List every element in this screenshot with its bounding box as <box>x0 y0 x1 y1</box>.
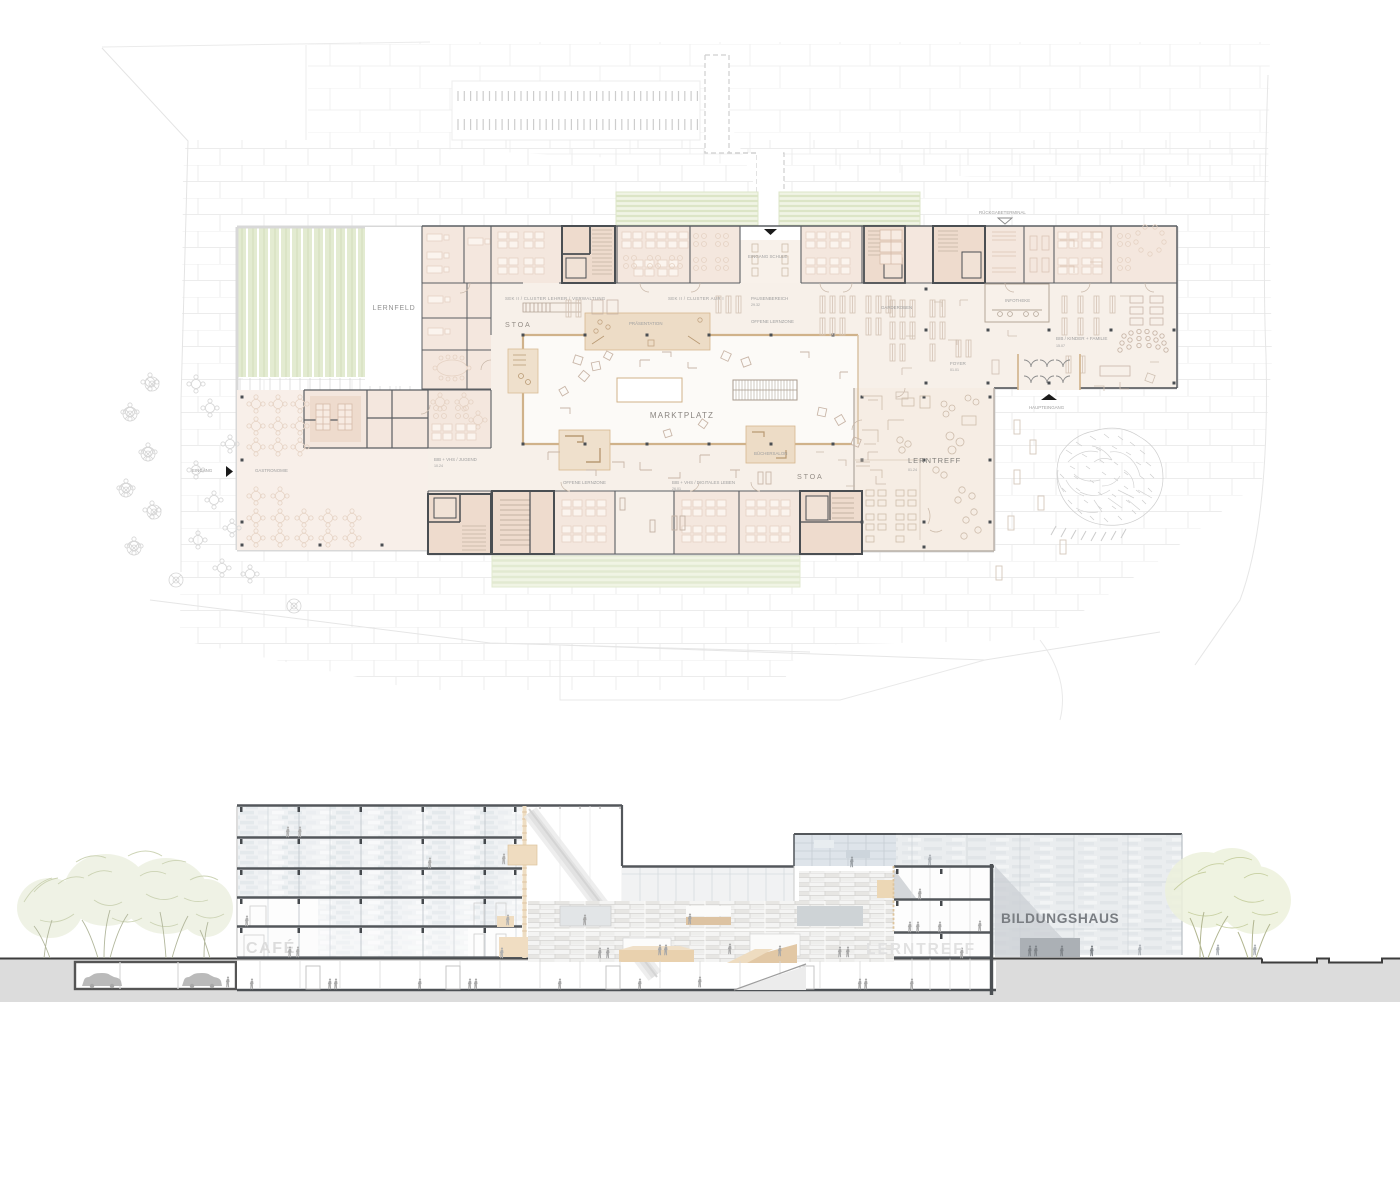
svg-text:26.01: 26.01 <box>672 487 681 491</box>
svg-text:GASTRONOMIE: GASTRONOMIE <box>255 468 288 473</box>
svg-text:BIB + VHS / DIGITALES LEBEN: BIB + VHS / DIGITALES LEBEN <box>672 480 735 485</box>
svg-text:FOYER: FOYER <box>950 361 967 366</box>
svg-text:HAUPTEINGANG: HAUPTEINGANG <box>1029 405 1065 410</box>
svg-text:INFOTHEKE: INFOTHEKE <box>1005 298 1030 303</box>
svg-text:OFFENE LERNZONE: OFFENE LERNZONE <box>751 319 794 324</box>
svg-text:OFFENE LERNZONE: OFFENE LERNZONE <box>563 480 606 485</box>
svg-text:BIB / KINDER + FAMILIE: BIB / KINDER + FAMILIE <box>1056 336 1107 341</box>
svg-text:GARDEROBEN: GARDEROBEN <box>881 305 912 310</box>
svg-text:BILDUNGSHAUS: BILDUNGSHAUS <box>1001 911 1119 926</box>
svg-text:PAUSENBEREICH: PAUSENBEREICH <box>751 296 788 301</box>
svg-text:29.32: 29.32 <box>751 303 760 307</box>
svg-text:LERNTREFF: LERNTREFF <box>908 456 961 465</box>
svg-text:PRÄSENTATION: PRÄSENTATION <box>629 321 663 326</box>
svg-text:STOA: STOA <box>505 320 532 329</box>
svg-text:MARKTPLATZ: MARKTPLATZ <box>650 411 714 420</box>
svg-text:STOA: STOA <box>797 472 824 481</box>
svg-text:15.07: 15.07 <box>1056 344 1065 348</box>
svg-text:LERNTREFF: LERNTREFF <box>866 941 976 958</box>
svg-text:01.24: 01.24 <box>908 468 917 472</box>
svg-text:01.01: 01.01 <box>950 368 959 372</box>
svg-text:EINGANG SCHULE: EINGANG SCHULE <box>748 254 787 259</box>
svg-text:SEK II / CLUSTER AUR I: SEK II / CLUSTER AUR I <box>668 296 724 301</box>
svg-text:LERNFELD: LERNFELD <box>373 305 416 312</box>
svg-text:BÜCHERSALON: BÜCHERSALON <box>754 451 787 456</box>
svg-text:BIB + VHS / JUGEND: BIB + VHS / JUGEND <box>434 457 477 462</box>
svg-text:10.24: 10.24 <box>434 464 443 468</box>
svg-text:SEK II / CLUSTER LEHRER / VERW: SEK II / CLUSTER LEHRER / VERWALTUNG <box>505 296 606 301</box>
svg-text:RÜCKGABETERMINAL: RÜCKGABETERMINAL <box>979 210 1026 215</box>
svg-text:EINGANG: EINGANG <box>192 468 213 473</box>
